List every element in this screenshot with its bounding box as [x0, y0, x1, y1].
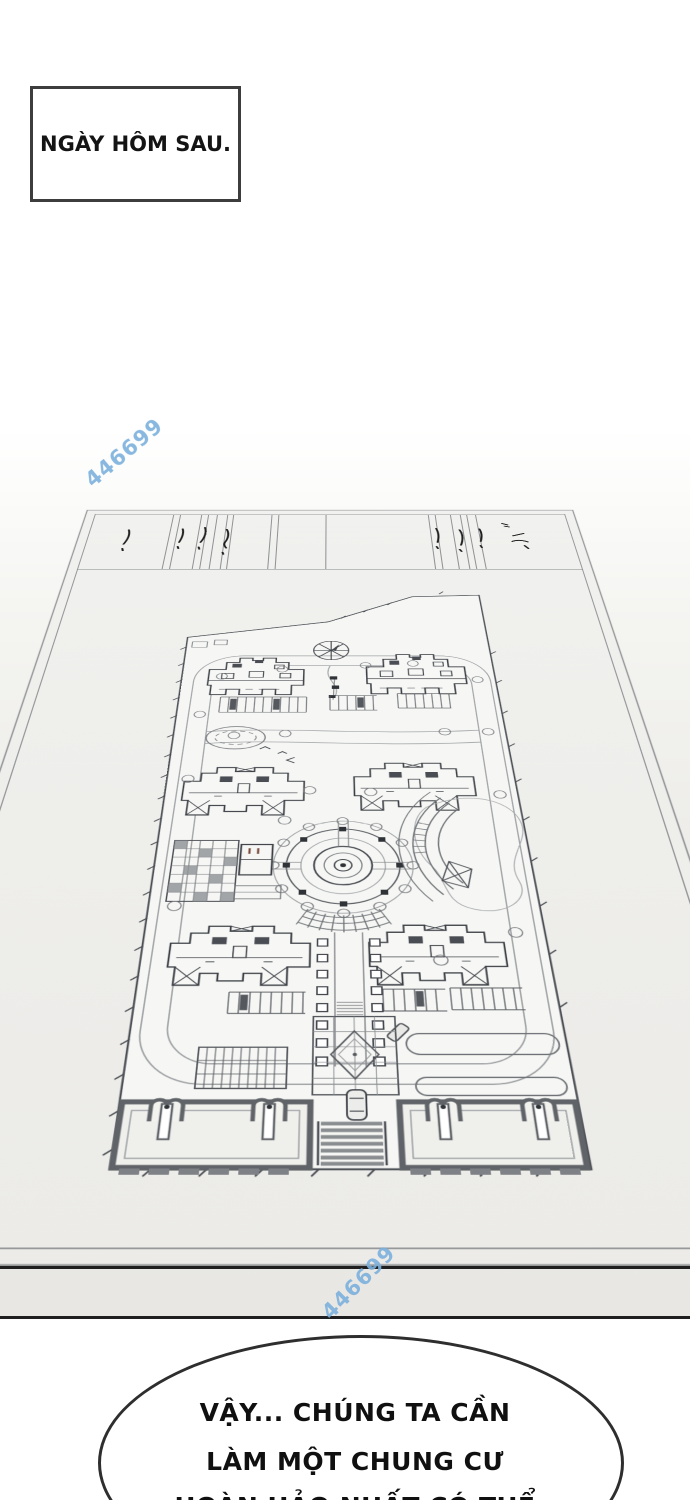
- panel-background: [0, 428, 690, 1318]
- bubble-line-3-partial: HOÀN HẢO NHẤT CÓ THỂ: [105, 1492, 605, 1500]
- comic-panel-page: NGÀY HÔM SAU. VẬY... CHÚNG TA CẦN LÀM MỘ…: [0, 0, 690, 1500]
- panel-border-line: [0, 1316, 690, 1319]
- bubble-line-2: LÀM MỘT CHUNG CƯ: [105, 1447, 605, 1476]
- caption-box: NGÀY HÔM SAU.: [30, 86, 241, 202]
- sheet-bottom-edge-line: [0, 1266, 690, 1269]
- bubble-line-1: VẬY... CHÚNG TA CẦN: [105, 1398, 605, 1427]
- caption-text: NGÀY HÔM SAU.: [40, 132, 231, 156]
